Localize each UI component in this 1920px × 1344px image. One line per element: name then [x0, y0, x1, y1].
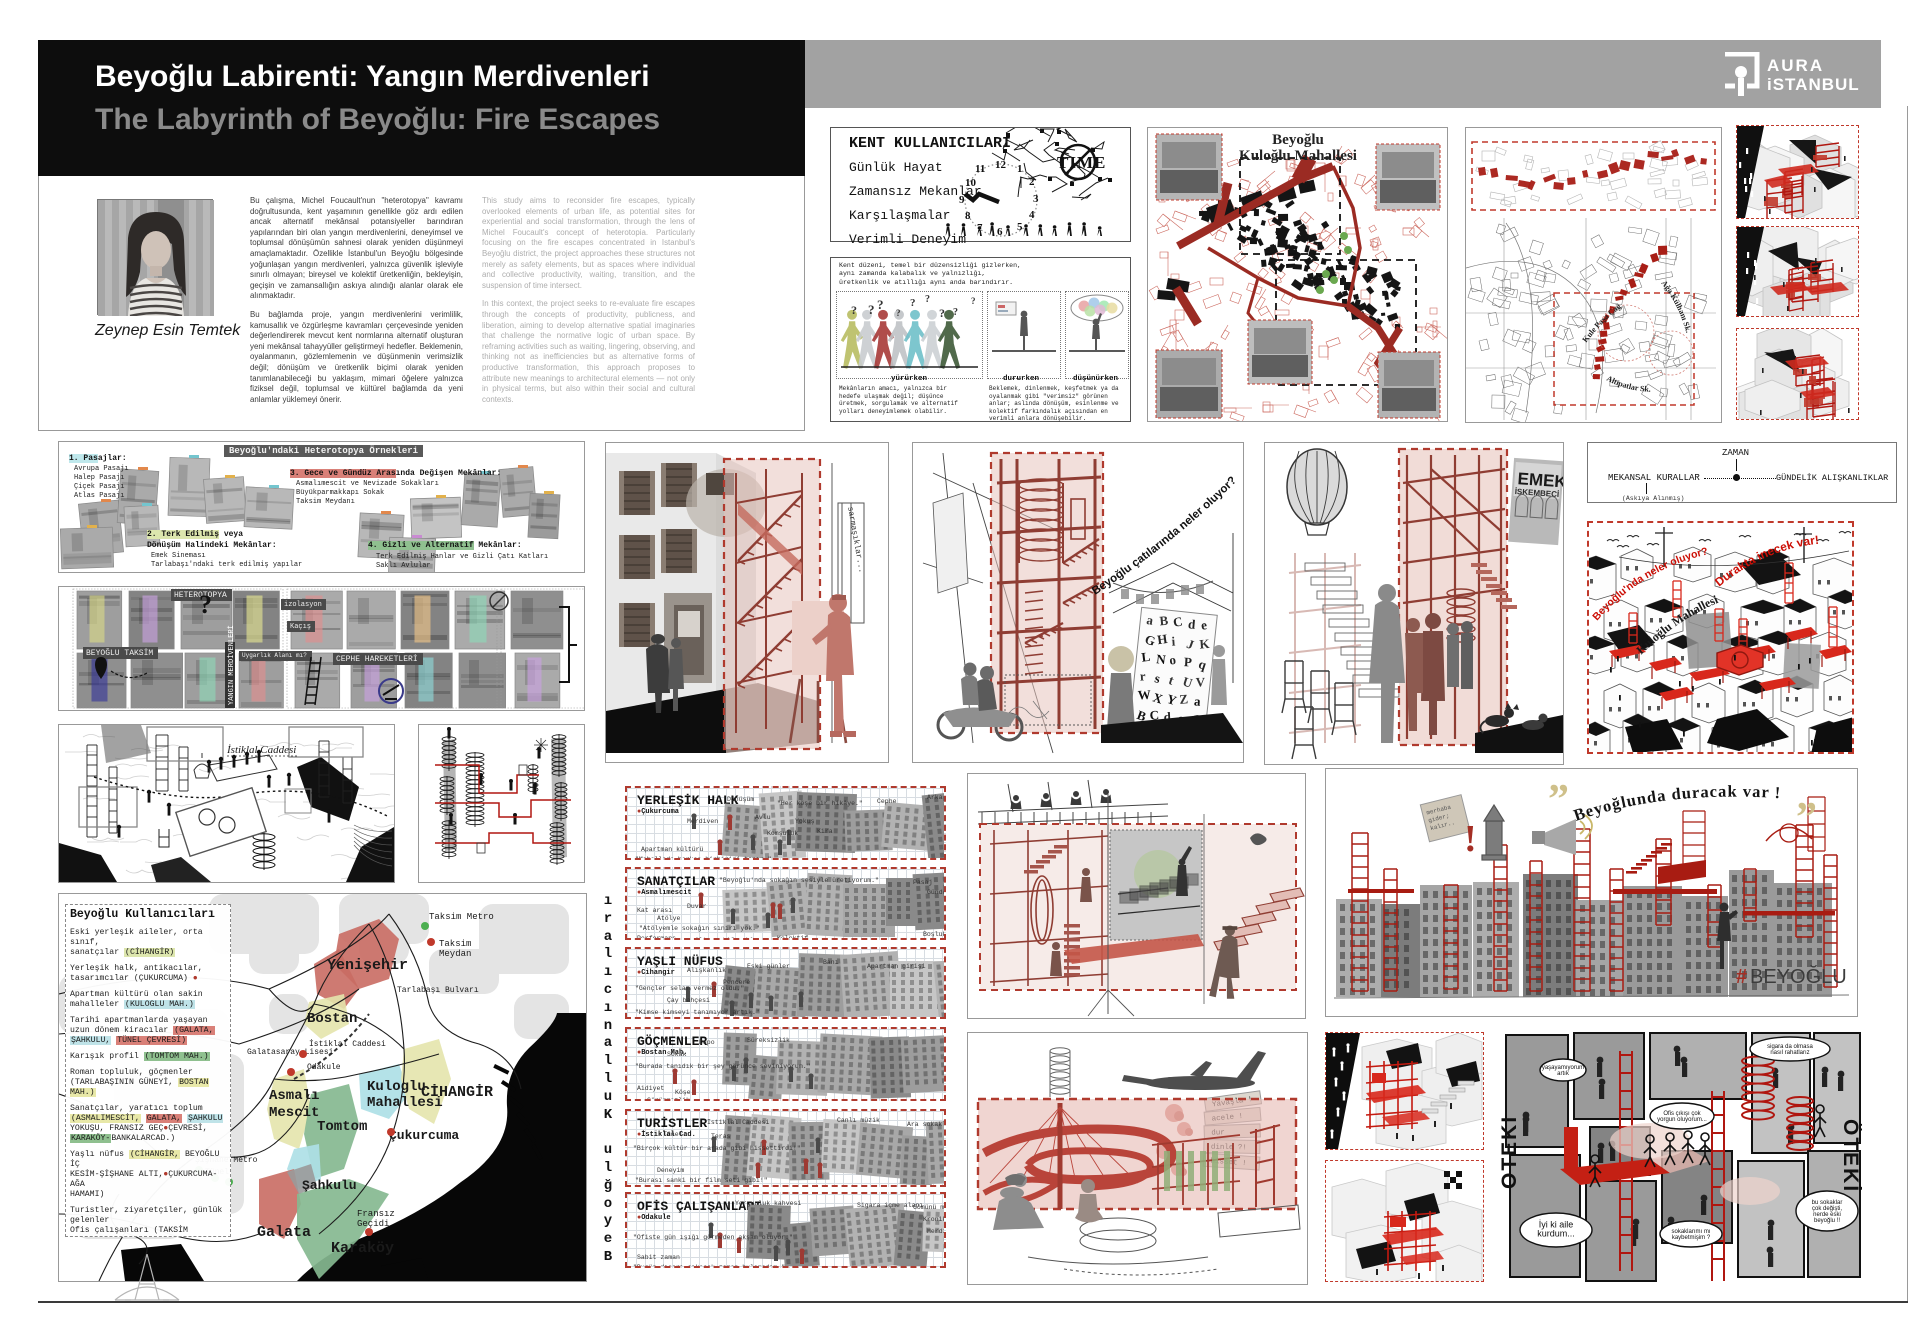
svg-text:?: ?	[851, 303, 857, 317]
svg-text:yorgun oluyorum...: yorgun oluyorum...	[1657, 1117, 1707, 1123]
svg-text:ÖTEKİ: ÖTEKİ	[1839, 1119, 1862, 1193]
svg-text:?: ?	[896, 308, 901, 318]
svg-text:?: ?	[868, 302, 875, 317]
svg-text:Karaköy: Karaköy	[331, 1240, 394, 1257]
svg-text:iSTANBUL: iSTANBUL	[1767, 75, 1860, 94]
svg-text:#: #	[1736, 966, 1747, 988]
svg-text:Çukurcuma: Çukurcuma	[389, 1128, 459, 1143]
svg-text:Taksim: Taksim	[439, 939, 471, 949]
svg-text:Bostan: Bostan	[307, 1011, 357, 1027]
svg-text:Geçidi: Geçidi	[357, 1219, 389, 1229]
svg-text:?: ?	[953, 307, 958, 318]
svg-text:BEYOĞLU: BEYOĞLU	[1750, 965, 1847, 988]
svg-text:CEPHE HAREKETLERİ: CEPHE HAREKETLERİ	[336, 655, 418, 664]
svg-text:Beyoğlu çatılarında neler oluy: Beyoğlu çatılarında neler oluyor?	[1090, 475, 1239, 598]
svg-text:AURA: AURA	[1767, 56, 1824, 75]
svg-text:H: H	[1156, 631, 1168, 647]
svg-text:r: r	[1139, 668, 1146, 683]
svg-text:sarmaşıklar...: sarmaşıklar...	[845, 506, 866, 574]
svg-text:beyoğlu !!: beyoğlu !!	[1814, 1218, 1840, 1224]
svg-text:Mescit: Mescit	[269, 1105, 319, 1121]
svg-text:3: 3	[1033, 193, 1039, 205]
svg-text:P: P	[1184, 654, 1193, 669]
svg-text:Meydan: Meydan	[439, 949, 471, 959]
svg-text:İstiklal Caddesi: İstiklal Caddesi	[226, 744, 296, 756]
svg-text:5: 5	[1017, 221, 1023, 233]
svg-text:?: ?	[925, 294, 930, 305]
svg-text:artık: artık	[1557, 1071, 1570, 1077]
svg-text:Beyoğlu: Beyoğlu	[1272, 132, 1324, 148]
svg-text:Kaçış: Kaçış	[290, 623, 311, 631]
svg-text:Galata: Galata	[257, 1224, 311, 1241]
svg-text:Asmalı: Asmalı	[269, 1088, 319, 1104]
svg-text:1: 1	[1017, 163, 1023, 175]
svg-text:Taksim Metro: Taksim Metro	[429, 912, 494, 922]
svg-text:Yenişehir: Yenişehir	[327, 957, 408, 974]
svg-text:CİHANGİR: CİHANGİR	[421, 1084, 493, 1101]
svg-text:izolasyon: izolasyon	[284, 601, 322, 609]
svg-text:Z: Z	[1179, 691, 1189, 707]
svg-text:Fransız: Fransız	[357, 1209, 395, 1219]
svg-text:B: B	[1159, 613, 1169, 629]
svg-text:?: ?	[910, 297, 916, 309]
svg-text:kaybetmişim ?: kaybetmişim ?	[1672, 1235, 1711, 1241]
svg-text:V: V	[1196, 674, 1206, 689]
svg-text:”: ”	[1796, 795, 1817, 841]
svg-text:ÖTEKİ: ÖTEKİ	[1500, 1115, 1521, 1189]
svg-text:10: 10	[965, 177, 977, 189]
svg-text:Uygarlık Alanı mı?: Uygarlık Alanı mı?	[242, 652, 307, 659]
svg-text:Kuloğlu Mahallesi: Kuloğlu Mahallesi	[1239, 148, 1357, 164]
svg-text:?: ?	[877, 297, 884, 312]
svg-text:BEYOĞLU TAKSİM: BEYOĞLU TAKSİM	[86, 648, 153, 658]
svg-text:?: ?	[199, 590, 212, 619]
svg-text:!: !	[1464, 818, 1477, 860]
svg-text:12: 12	[995, 159, 1007, 171]
svg-text:Tomtom: Tomtom	[317, 1119, 367, 1135]
svg-text:?: ?	[971, 296, 976, 306]
svg-text:Beyoğlunda duracak var !: Beyoğlunda duracak var !	[1571, 782, 1782, 825]
svg-text:Şahkulu: Şahkulu	[302, 1178, 357, 1193]
svg-text:Tarlabaşı Bulvarı: Tarlabaşı Bulvarı	[397, 986, 479, 995]
svg-text:nasıl rahatlarız: nasıl rahatlarız	[1770, 1050, 1809, 1056]
svg-text:Kuloglu: Kuloglu	[367, 1079, 426, 1095]
svg-text:TIME: TIME	[1057, 153, 1106, 172]
svg-text:?: ?	[939, 306, 945, 320]
svg-text:8: 8	[965, 210, 971, 222]
svg-text:4: 4	[1029, 209, 1035, 221]
svg-text:W: W	[1137, 687, 1151, 703]
svg-text:kurdum...: kurdum...	[1537, 1229, 1575, 1239]
svg-text:Galatasaray Lisesi: Galatasaray Lisesi	[247, 1048, 334, 1057]
svg-text:YANGIN MERDİVENLERİ: YANGIN MERDİVENLERİ	[227, 625, 236, 705]
svg-text:K: K	[1199, 636, 1211, 652]
svg-text:”: ”	[1548, 777, 1569, 823]
svg-text:6: 6	[997, 226, 1003, 238]
svg-text:11: 11	[975, 163, 985, 175]
svg-text:Odakule: Odakule	[307, 1063, 341, 1072]
